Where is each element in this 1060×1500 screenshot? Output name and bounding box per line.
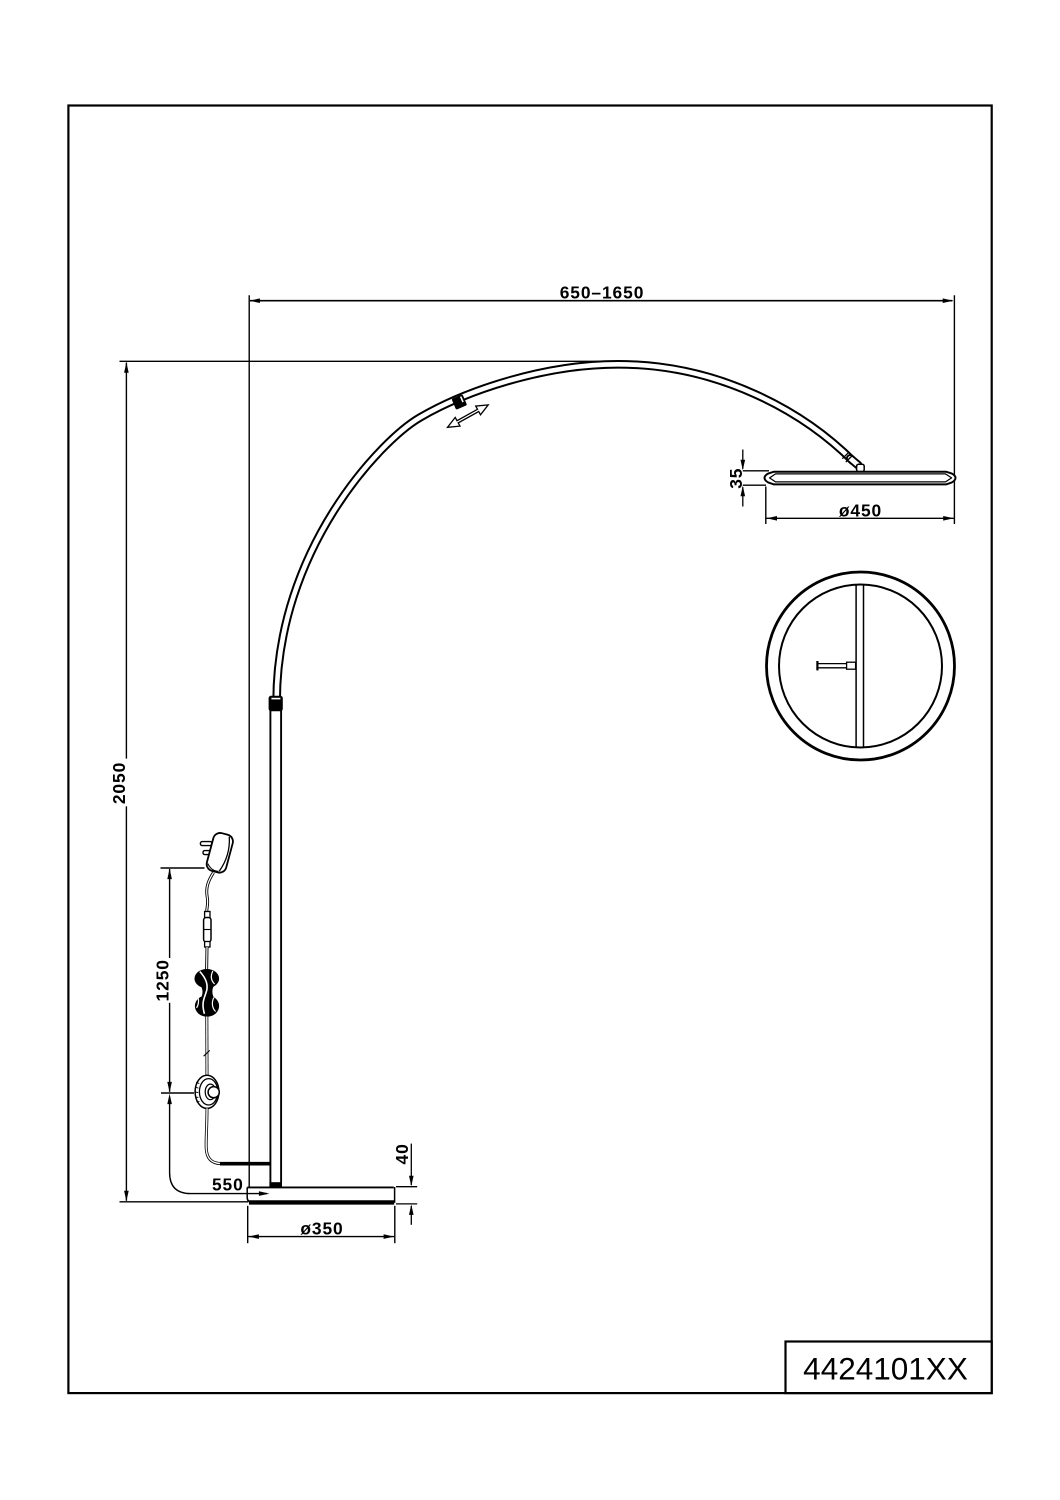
svg-text:2050: 2050 [109, 762, 129, 804]
svg-text:550: 550 [212, 1174, 244, 1194]
svg-text:ø350: ø350 [300, 1218, 343, 1238]
svg-text:35: 35 [726, 468, 746, 489]
svg-text:650–1650: 650–1650 [560, 283, 645, 303]
svg-text:1250: 1250 [153, 959, 173, 1001]
svg-text:4424101XX: 4424101XX [803, 1351, 968, 1387]
svg-text:40: 40 [392, 1143, 412, 1164]
svg-text:ø450: ø450 [839, 500, 882, 520]
